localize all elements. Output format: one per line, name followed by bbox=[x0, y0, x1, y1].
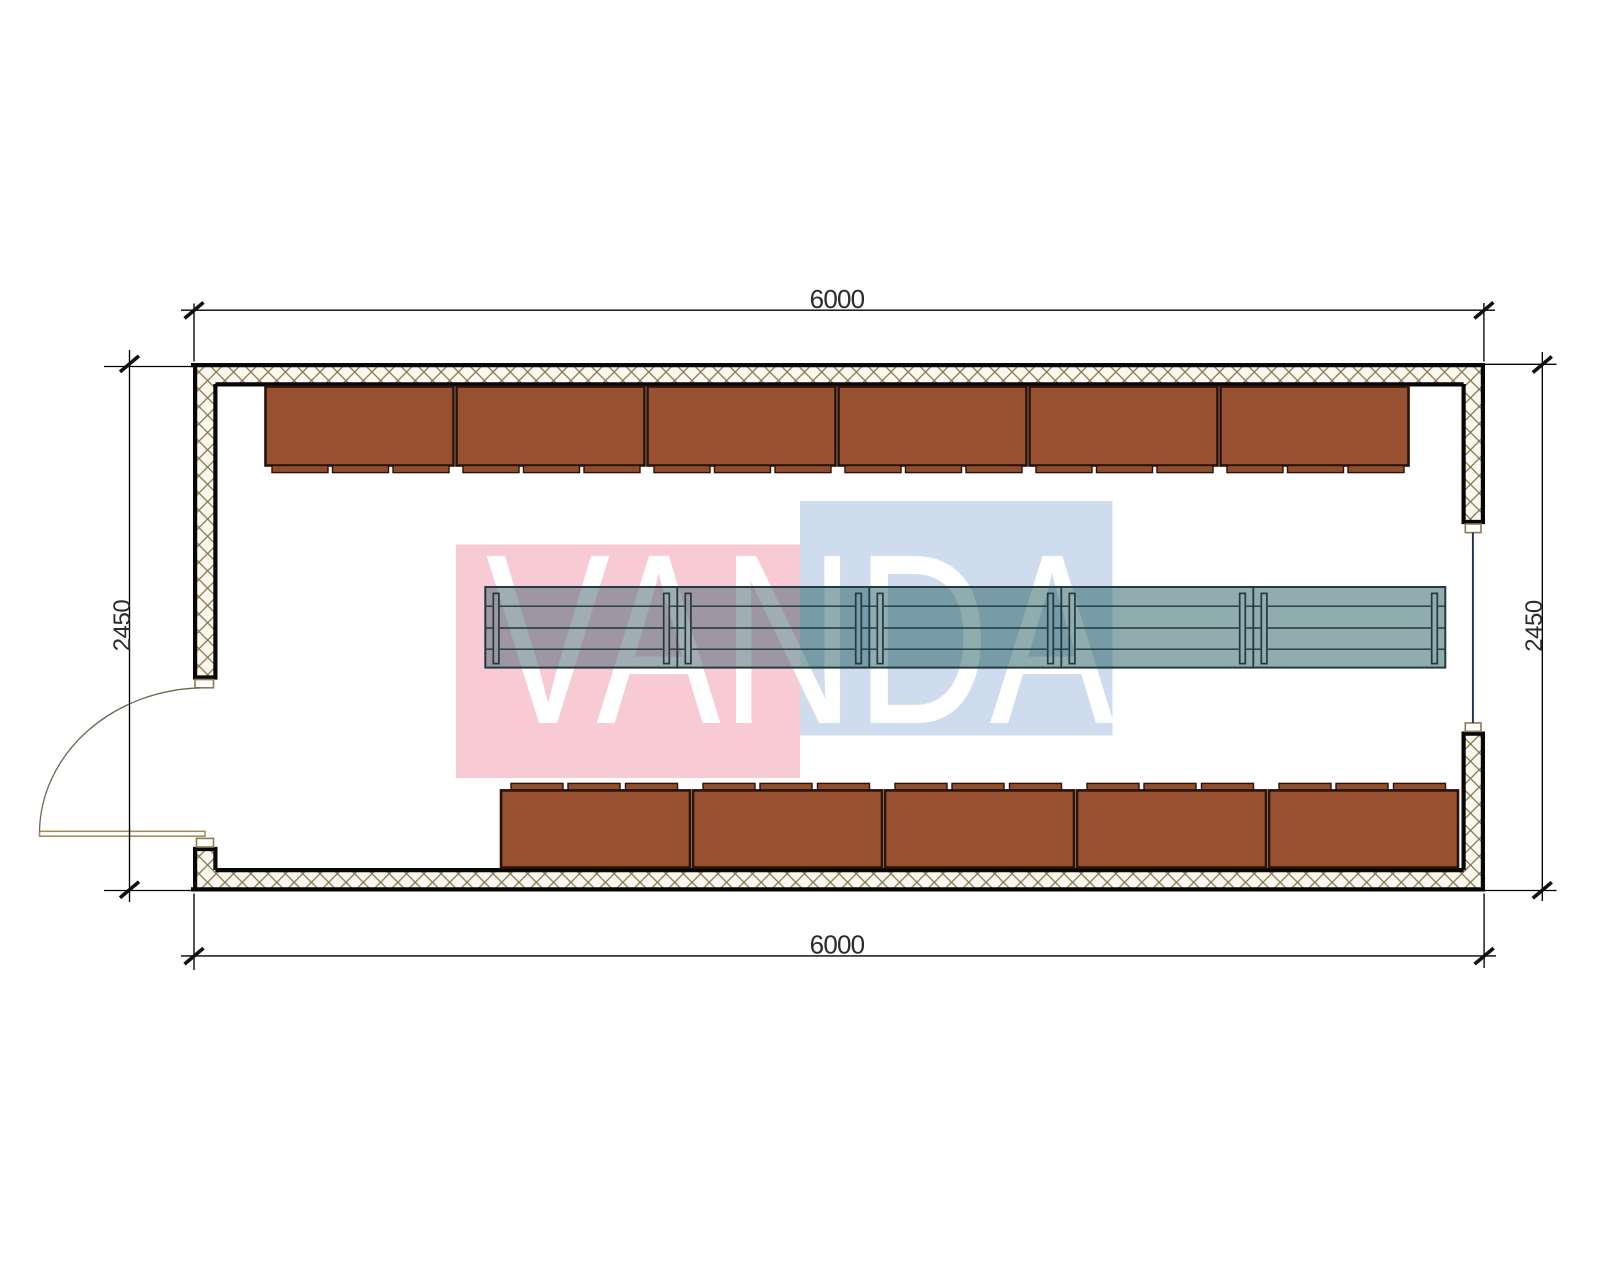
svg-text:6000: 6000 bbox=[810, 284, 865, 314]
svg-text:2450: 2450 bbox=[1521, 600, 1548, 652]
svg-text:6000: 6000 bbox=[810, 930, 865, 960]
svg-text:2450: 2450 bbox=[109, 600, 136, 652]
